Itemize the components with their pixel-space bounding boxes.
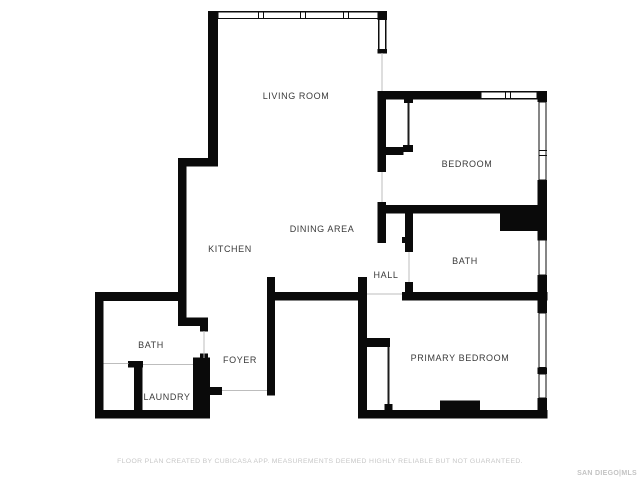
closet-jamb-top [404,97,413,104]
wall-bath2-top [95,292,186,301]
room-label-living-room: LIVING ROOM [263,91,330,101]
mullion [263,11,264,19]
room-label-bath: BATH [452,256,478,266]
wall-hall-bath-jamb [402,237,406,243]
living-top-window [218,12,378,19]
shaft-block [500,205,538,231]
wall-right-mullion [538,368,548,375]
closet-jamb-bottom [403,145,413,152]
bedroom-top-window [481,92,537,99]
laundry-opening [143,364,193,365]
wall-laundry-left [134,361,143,414]
living-right-window [379,20,386,50]
room-label-dining-area: DINING AREA [290,224,355,234]
window-mullions [258,11,547,156]
bedroom-door-opening [382,172,383,202]
wall-bedroom-left [378,91,387,172]
wall-foyer-right [267,277,275,396]
primary-right-window-2 [539,374,546,398]
room-label-primary-bedroom: PRIMARY BEDROOM [411,353,510,363]
wall-bath2-left [95,292,104,419]
primary-door-opening [367,294,402,295]
entry-door-opening [222,390,267,391]
wall-kitchen-l-vertical [200,318,208,332]
living-right-opening [382,53,383,91]
room-label-foyer: FOYER [223,355,257,365]
room-label-bedroom: BEDROOM [442,159,493,169]
wall-bath2-bottom [95,410,210,419]
mullion [505,91,506,99]
wall-dining-south [275,292,358,301]
wall-primary-closet [361,338,390,347]
wall-hall-bath-upper [405,213,413,252]
bedroom-closet-door [408,103,410,145]
mullion [343,11,344,19]
room-label-kitchen: KITCHEN [208,244,252,254]
wall-bedroom-bottom [378,205,501,214]
primary-builtin-block [440,401,480,412]
mullion [300,11,301,19]
mullion [539,155,548,156]
mullion [305,11,306,19]
bath-door-opening [409,252,410,282]
bedroom-right-window [539,102,546,180]
wall-bath-bottom [402,292,548,301]
room-label-hall: HALL [374,270,399,280]
wall-laundry-column [193,358,210,419]
mullion [510,91,511,99]
footer-disclaimer: FLOOR PLAN CREATED BY CUBICASA APP. MEAS… [0,458,640,465]
wall-primary-bottom [358,410,548,419]
wall-foyer-entry-jamb [208,387,222,395]
bath-right-window [539,240,546,275]
wall-bedroom-left-corner [378,202,387,214]
mullion [539,150,548,151]
room-label-laundry: LAUNDRY [143,392,190,402]
floorplan-drawing [0,0,640,480]
wall-bedroom-top [378,91,482,100]
wall-hall-left [378,213,387,243]
wall-bedroom-closet [378,147,404,155]
wall-bedroom-tr-corner [538,91,548,102]
room-label-bath-2: BATH [138,340,164,350]
bath2-closet-opening [104,363,129,364]
mls-watermark: SAN DIEGO|MLS [577,470,637,477]
wall-primary-left [358,277,367,418]
mullion [258,11,259,19]
mullion [348,11,349,19]
foyer-kitchen-opening [204,331,205,358]
wall-living-left [208,11,218,166]
wall-right-mid1 [538,180,548,241]
floorplan-page: LIVING ROOM BEDROOM DINING AREA KITCHEN … [0,0,640,480]
primary-right-window-1 [539,313,546,368]
primary-closet-door [388,347,390,404]
wall-living-topright-corner [378,11,388,20]
